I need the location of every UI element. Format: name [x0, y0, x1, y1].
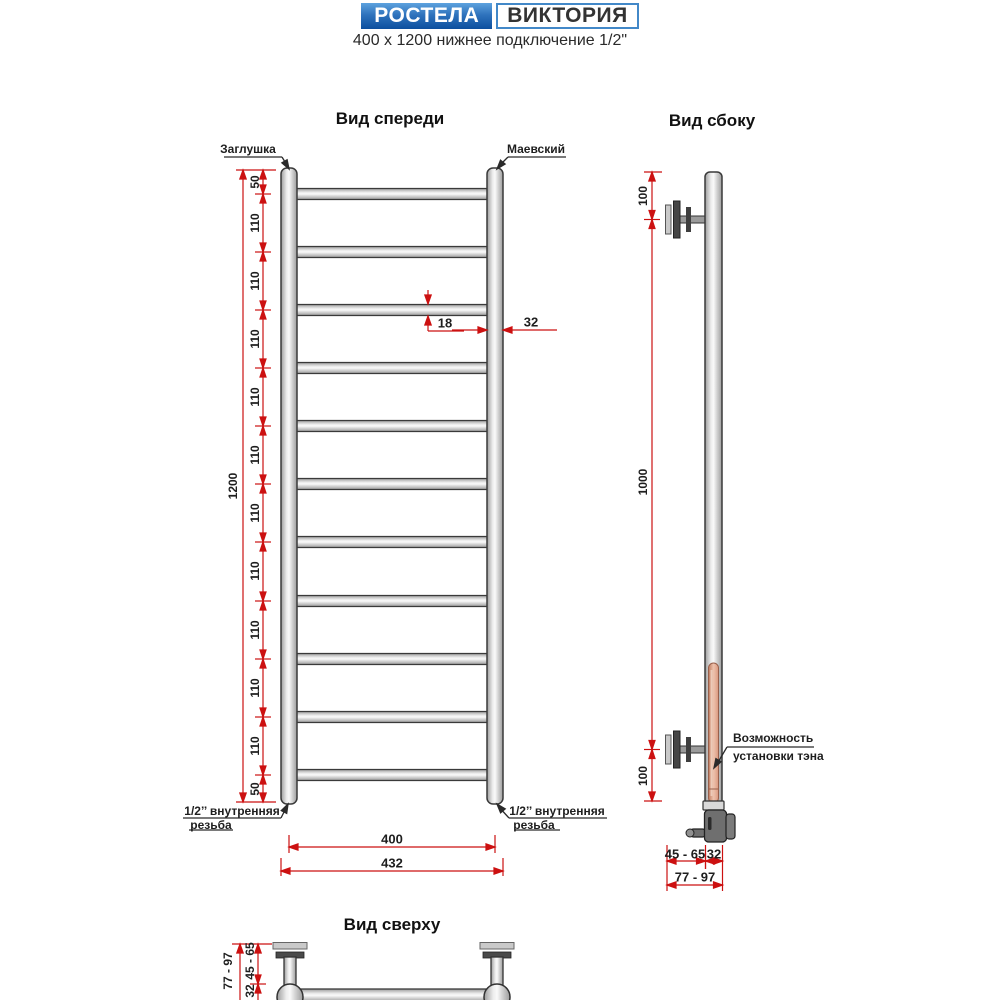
thread-label-right2: резьба — [513, 818, 554, 832]
dim-segment: 110 — [248, 445, 262, 464]
thread-label-left2: резьба — [190, 818, 231, 832]
dim-bracket-span: 1000 — [636, 469, 650, 496]
dim-tube-depth: 32 — [707, 847, 721, 862]
top-view-title: Вид сверху — [344, 915, 441, 935]
product-subtitle: 400 x 1200 нижнее подключение 1/2" — [0, 32, 980, 50]
dim-segment: 50 — [248, 175, 262, 188]
towel-rail-technical-drawing: РОСТЕЛА ВИКТОРИЯ 400 x 1200 нижнее подкл… — [0, 0, 1000, 1000]
dim-total-depth-range: 77 - 97 — [675, 870, 715, 885]
dim-segment: 110 — [248, 387, 262, 406]
dim-total-depth-top: 77 - 97 — [221, 952, 235, 989]
dim-bottom-offset: 100 — [636, 766, 650, 786]
drawing-linework — [0, 0, 1000, 1000]
front-view-drawing — [281, 168, 503, 804]
dim-segment: 110 — [248, 736, 262, 755]
dim-rung-diameter: 18 — [438, 316, 452, 331]
dim-tube-top: 32 — [243, 984, 257, 997]
dim-segment: 110 — [248, 678, 262, 697]
dim-top-offset: 100 — [636, 186, 650, 206]
dim-segment: 110 — [248, 213, 262, 232]
top-view-drawing — [273, 943, 514, 1000]
thread-label-right: 1/2’’ внутренняя — [509, 804, 604, 818]
header: РОСТЕЛА ВИКТОРИЯ — [0, 3, 1000, 29]
air-valve-label: Маевский — [507, 142, 565, 156]
electric-heater-housing — [686, 801, 735, 842]
dim-tube-diameter: 32 — [524, 315, 538, 330]
dim-overall-width: 432 — [381, 856, 403, 871]
dim-segment: 110 — [248, 503, 262, 522]
model-badge: ВИКТОРИЯ — [496, 3, 638, 29]
dim-segment: 110 — [248, 329, 262, 348]
dim-depth-range: 45 - 65 — [665, 847, 705, 862]
dim-overall-height: 1200 — [226, 473, 240, 500]
side-view-drawing — [666, 172, 736, 842]
front-view-title: Вид спереди — [336, 109, 445, 129]
brand-badge: РОСТЕЛА — [361, 3, 492, 29]
thread-label-left: 1/2’’ внутренняя — [184, 804, 279, 818]
heating-element-cartridge — [709, 663, 719, 803]
dim-segment: 110 — [248, 271, 262, 290]
heater-note-line2: установки тэна — [733, 749, 824, 763]
dim-segment: 50 — [248, 782, 262, 795]
plug-label: Заглушка — [220, 142, 276, 156]
dim-segment: 110 — [248, 620, 262, 639]
dim-segment: 110 — [248, 561, 262, 580]
side-view-title: Вид сбоку — [669, 111, 755, 131]
dim-depth-range-top: 45 - 65 — [243, 942, 257, 979]
dim-axis-width: 400 — [381, 832, 403, 847]
heater-note-line1: Возможность — [733, 731, 813, 745]
